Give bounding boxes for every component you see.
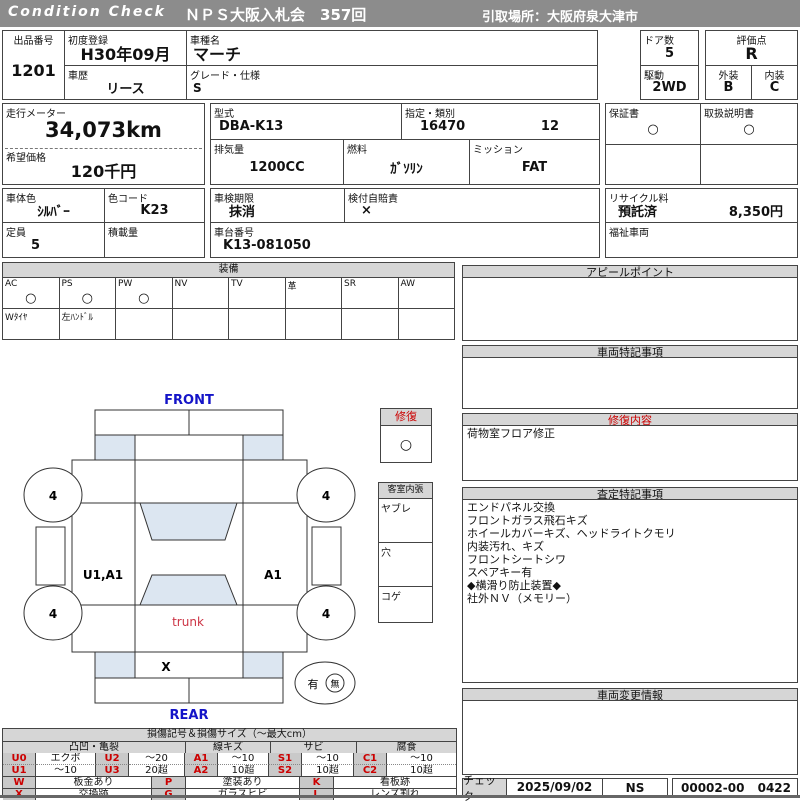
score-cell: 評価点 R (705, 30, 798, 66)
front-right-corner (243, 435, 283, 460)
legend-size: 10超 (218, 764, 269, 776)
equipment-note (342, 309, 399, 339)
model-name-value: マーチ (187, 41, 597, 65)
check-code2: 0422 (744, 781, 797, 795)
inspection-cell: 車検期限 抹消 (210, 188, 345, 223)
insurance-mark: × (345, 199, 471, 222)
model-name-cell: 車種名 マーチ (186, 30, 598, 66)
color-code-cell: 色コード K23 (104, 188, 205, 223)
manual-mark: ○ (701, 114, 797, 144)
legend-size: ～10 (36, 764, 96, 776)
designation-cell: 指定・類別 16470 12 (401, 103, 600, 140)
wheel-mark: 4 (49, 489, 57, 503)
front-left-corner (95, 435, 135, 460)
legend-code: A1 (185, 753, 218, 764)
score-value: R (706, 41, 797, 65)
equipment-mark: ○ (116, 288, 172, 308)
right-sill (312, 527, 341, 585)
warranty-cell: 保証書 ○ (605, 103, 701, 145)
legend-code: U1 (3, 764, 36, 776)
cabin-row-hole: 穴 (379, 543, 432, 587)
legend-size: 10超 (302, 764, 354, 776)
appeal-body (462, 277, 798, 341)
equipment-mark (399, 288, 455, 308)
body-color-cell: 車体色 ｼﾙﾊﾞｰ (2, 188, 105, 223)
chassis-cell: 車台番号 K13-081050 (210, 222, 600, 258)
check-inspector: NS (603, 781, 667, 795)
assessment-line: エンドパネル交換 (467, 501, 793, 514)
body-color-value: ｼﾙﾊﾞｰ (3, 199, 104, 222)
spare-yes-label: 有 (308, 677, 319, 691)
check-date: 2025/09/02 (507, 779, 603, 796)
legend-group: 凸凹・亀裂 (3, 742, 186, 753)
legend-size: ～10 (302, 753, 354, 764)
equipment-mark (229, 288, 285, 308)
recycle-amount: 8,350円 (606, 199, 797, 222)
assessment-line: スペアキー有 (467, 566, 793, 579)
legend-size: エクボ (36, 753, 96, 764)
drive-value: 2WD (641, 76, 698, 99)
interior-cell: 内装 C (751, 65, 798, 100)
equipment-note: 左ﾊﾝﾄﾞﾙ (60, 309, 117, 339)
odometer-value: 34,073km (3, 114, 204, 146)
rear-left-corner (95, 652, 135, 678)
legend-code: U2 (96, 753, 129, 764)
mission-value: FAT (470, 150, 599, 184)
legend-size: ～20 (129, 753, 185, 764)
legend-group-row: 凸凹・亀裂 線キズ サビ 腐食 (3, 742, 456, 753)
equipment-note (116, 309, 173, 339)
check-code1: 00002-00 (673, 781, 744, 795)
front-label: FRONT (164, 393, 214, 408)
equipment-note (173, 309, 230, 339)
legend-group: サビ (271, 742, 357, 753)
legend-code: U3 (96, 764, 129, 776)
equipment-cell-ps: PS○ (60, 278, 117, 308)
equipment-note-row: Wﾀｲﾔ 左ﾊﾝﾄﾞﾙ (3, 308, 454, 339)
legend-size: 20超 (129, 764, 185, 776)
cabin-lining-title: 客室内張 (379, 483, 432, 499)
manual-cell: 取扱説明書 ○ (700, 103, 798, 145)
legend-code: W (3, 777, 36, 788)
legend-desc: 看板跡 (334, 777, 456, 788)
brand-logo: Condition Check (8, 4, 166, 20)
doors-cell: ドア数 5 (640, 30, 699, 66)
legend-size: ～10 (387, 753, 456, 764)
trunk-label: trunk (172, 615, 204, 629)
pickup-location: 引取場所：大阪府泉大津市 (482, 6, 638, 25)
legend-code: U0 (3, 753, 36, 764)
equipment-value-row: AC○ PS○ PW○ NV TV 革 SR AW (3, 278, 454, 308)
repair-flag-box: 修復 ○ (380, 408, 432, 463)
equipment-mark: ○ (60, 288, 116, 308)
legend-row-3: W 板金あり P 塗装あり K 看板跡 (3, 776, 456, 788)
equipment-note-text: 左ﾊﾝﾄﾞﾙ (62, 310, 94, 323)
equipment-cell-sr: SR (342, 278, 399, 308)
model-code-cell: 型式 DBA-K13 (210, 103, 402, 140)
spare-tire-badge (295, 662, 355, 704)
odometer-price-cell: 走行メーター 34,073km 希望価格 120千円 (2, 103, 205, 185)
equipment-mark (173, 288, 229, 308)
equipment-note-text: Wﾀｲﾔ (5, 310, 27, 323)
lot-number-value: 1201 (3, 41, 64, 99)
equipment-title: 装備 (3, 263, 454, 278)
warranty-mark: ○ (606, 114, 700, 144)
windshield (140, 503, 237, 540)
assessment-line: 内装汚れ、キズ (467, 540, 793, 553)
history-cell: 車歴 リース (64, 65, 187, 100)
capacity-value: 5 (3, 233, 104, 257)
empty-cell (471, 188, 600, 223)
fuel-cell: 燃料 ｶﾞｿﾘﾝ (343, 139, 470, 185)
legend-code: C2 (354, 764, 387, 776)
price-value: 120千円 (3, 156, 204, 184)
welfare-cell: 福祉車両 (605, 222, 798, 258)
payload-value (105, 233, 204, 257)
exterior-value: B (706, 76, 751, 99)
repair-detail-body: 荷物室フロア修正 (462, 425, 798, 481)
damage-legend-table: 損傷記号＆損傷サイズ（～最大cm） 凸凹・亀裂 線キズ サビ 腐食 U0 エクボ… (2, 728, 457, 798)
assessment-body: エンドパネル交換 フロントガラス飛石キズ ホイールカバーキズ、ヘッドライトクモリ… (462, 499, 798, 683)
legend-group: 線キズ (186, 742, 271, 753)
first-reg-value: H30年09月 (65, 41, 186, 65)
legend-title: 損傷記号＆損傷サイズ（～最大cm） (3, 729, 456, 742)
legend-code: K (300, 777, 334, 788)
grade-value: S (187, 76, 597, 99)
displacement-value: 1200CC (211, 150, 343, 184)
equipment-cell-leather: 革 (286, 278, 343, 308)
lot-number-cell: 出品番号 1201 (2, 30, 65, 100)
right-panel-mark: A1 (264, 568, 282, 582)
spare-no-label: 無 (330, 678, 339, 690)
rear-label: REAR (170, 708, 209, 723)
car-damage-diagram: FRONT 4 4 4 4 U1,A1 A1 trunk X 有 無 REAR (0, 390, 380, 725)
rear-window (140, 575, 237, 605)
legend-code: S1 (269, 753, 302, 764)
drive-cell: 駆動 2WD (640, 65, 699, 100)
cabin-row-burn: コゲ (379, 587, 432, 629)
legend-code: S2 (269, 764, 302, 776)
equipment-cell-tv: TV (229, 278, 286, 308)
inspection-value: 抹消 (211, 199, 344, 222)
assessment-line: 社外ＮＶ（メモリー） (467, 592, 793, 605)
chassis-value: K13-081050 (211, 233, 599, 257)
designation-value2: 12 (402, 114, 599, 139)
empty-cell (700, 144, 798, 185)
wheel-mark: 4 (322, 489, 330, 503)
legend-row-2: U1 ～10 U3 20超 A2 10超 S2 10超 C2 10超 (3, 764, 456, 776)
cabin-lining-box: 客室内張 ヤブレ 穴 コゲ (378, 482, 433, 623)
left-sill (36, 527, 65, 585)
legend-size: 10超 (387, 764, 456, 776)
doors-value: 5 (641, 41, 698, 65)
repair-flag-title: 修復 (381, 409, 431, 426)
rear-right-corner (243, 652, 283, 678)
equipment-note (229, 309, 286, 339)
assessment-line: フロントガラス飛石キズ (467, 514, 793, 527)
repair-flag-mark: ○ (381, 426, 431, 463)
capacity-cell: 定員 5 (2, 222, 105, 258)
payload-cell: 積載量 (104, 222, 205, 258)
change-info-body (462, 700, 798, 775)
color-code-value: K23 (105, 199, 204, 222)
equipment-table: 装備 AC○ PS○ PW○ NV TV 革 SR AW Wﾀｲﾔ 左ﾊﾝﾄﾞﾙ (2, 262, 455, 340)
legend-size: ～10 (218, 753, 269, 764)
equipment-mark (286, 288, 342, 308)
recycle-cell: リサイクル料 預託済 8,350円 (605, 188, 798, 223)
legend-code: C1 (354, 753, 387, 764)
equipment-note (399, 309, 455, 339)
equipment-mark (342, 288, 398, 308)
title-bar: Condition Check ＮＰＳ大阪入札会 357回 引取場所：大阪府泉大… (0, 0, 800, 27)
rear-panel-mark: X (161, 660, 171, 674)
insurance-cell: 検付自賠責 × (344, 188, 472, 223)
legend-desc: 塗装あり (186, 777, 300, 788)
legend-desc: 板金あり (36, 777, 152, 788)
displacement-cell: 排気量 1200CC (210, 139, 344, 185)
first-reg-cell: 初度登録 H30年09月 (64, 30, 187, 66)
fuel-value: ｶﾞｿﾘﾝ (344, 150, 469, 184)
assessment-line: ◆横滑り防止装置◆ (467, 579, 793, 592)
bottom-rule (0, 795, 800, 798)
legend-row-1: U0 エクボ U2 ～20 A1 ～10 S1 ～10 C1 ～10 (3, 753, 456, 764)
assessment-line: ホイールカバーキズ、ヘッドライトクモリ (467, 527, 793, 540)
exterior-cell: 外装 B (705, 65, 752, 100)
welfare-value (606, 233, 797, 257)
equipment-mark: ○ (3, 288, 59, 308)
assessment-line: フロントシートシワ (467, 553, 793, 566)
vehicle-notes-body (462, 357, 798, 409)
grade-cell: グレード・仕様 S (186, 65, 598, 100)
history-value: リース (65, 76, 186, 99)
mission-cell: ミッション FAT (469, 139, 600, 185)
left-panel-mark: U1,A1 (83, 568, 123, 582)
wheel-mark: 4 (322, 607, 330, 621)
legend-code: P (152, 777, 186, 788)
equipment-note: Wﾀｲﾔ (3, 309, 60, 339)
equipment-cell-ac: AC○ (3, 278, 60, 308)
legend-code: A2 (185, 764, 218, 776)
equipment-cell-aw: AW (399, 278, 455, 308)
equipment-note (286, 309, 343, 339)
legend-row-4: X 交換跡 G ガラスヒビ L レンズ割れ (3, 788, 456, 800)
wheel-mark: 4 (49, 607, 57, 621)
auction-title: ＮＰＳ大阪入札会 357回 (185, 4, 366, 25)
empty-cell (605, 144, 701, 185)
equipment-cell-nv: NV (173, 278, 230, 308)
equipment-cell-pw: PW○ (116, 278, 173, 308)
legend-group: 腐食 (357, 742, 456, 753)
cabin-row-tear: ヤブレ (379, 499, 432, 543)
interior-value: C (752, 76, 797, 99)
model-code-value: DBA-K13 (211, 114, 401, 139)
